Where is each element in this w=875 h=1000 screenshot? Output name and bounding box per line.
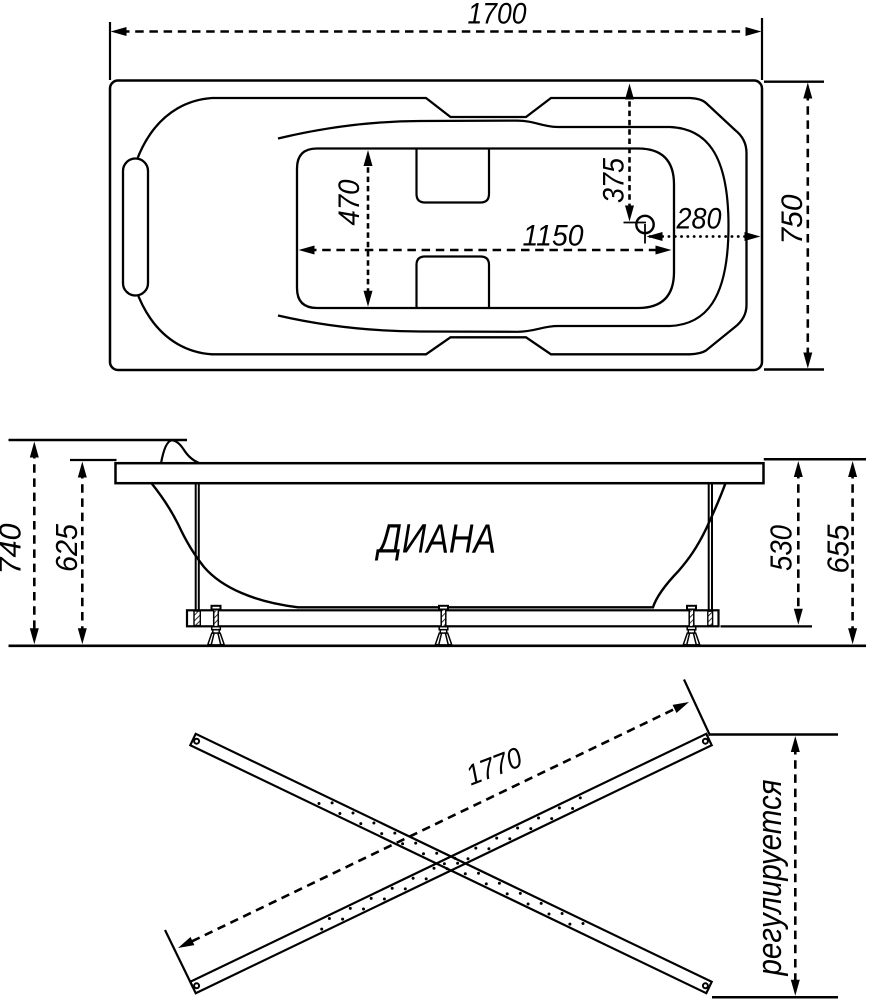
svg-text:регулируется: регулируется [751, 780, 789, 977]
svg-text:750: 750 [776, 194, 809, 244]
svg-text:470: 470 [333, 179, 366, 225]
svg-text:625: 625 [49, 523, 84, 572]
svg-text:740: 740 [0, 524, 28, 575]
svg-text:280: 280 [676, 203, 722, 236]
svg-text:375: 375 [598, 158, 631, 203]
svg-text:ДИАНА: ДИАНА [375, 516, 496, 562]
svg-text:530: 530 [764, 525, 799, 571]
svg-text:1700: 1700 [468, 0, 527, 31]
svg-text:1150: 1150 [523, 220, 584, 253]
svg-text:655: 655 [821, 524, 856, 574]
